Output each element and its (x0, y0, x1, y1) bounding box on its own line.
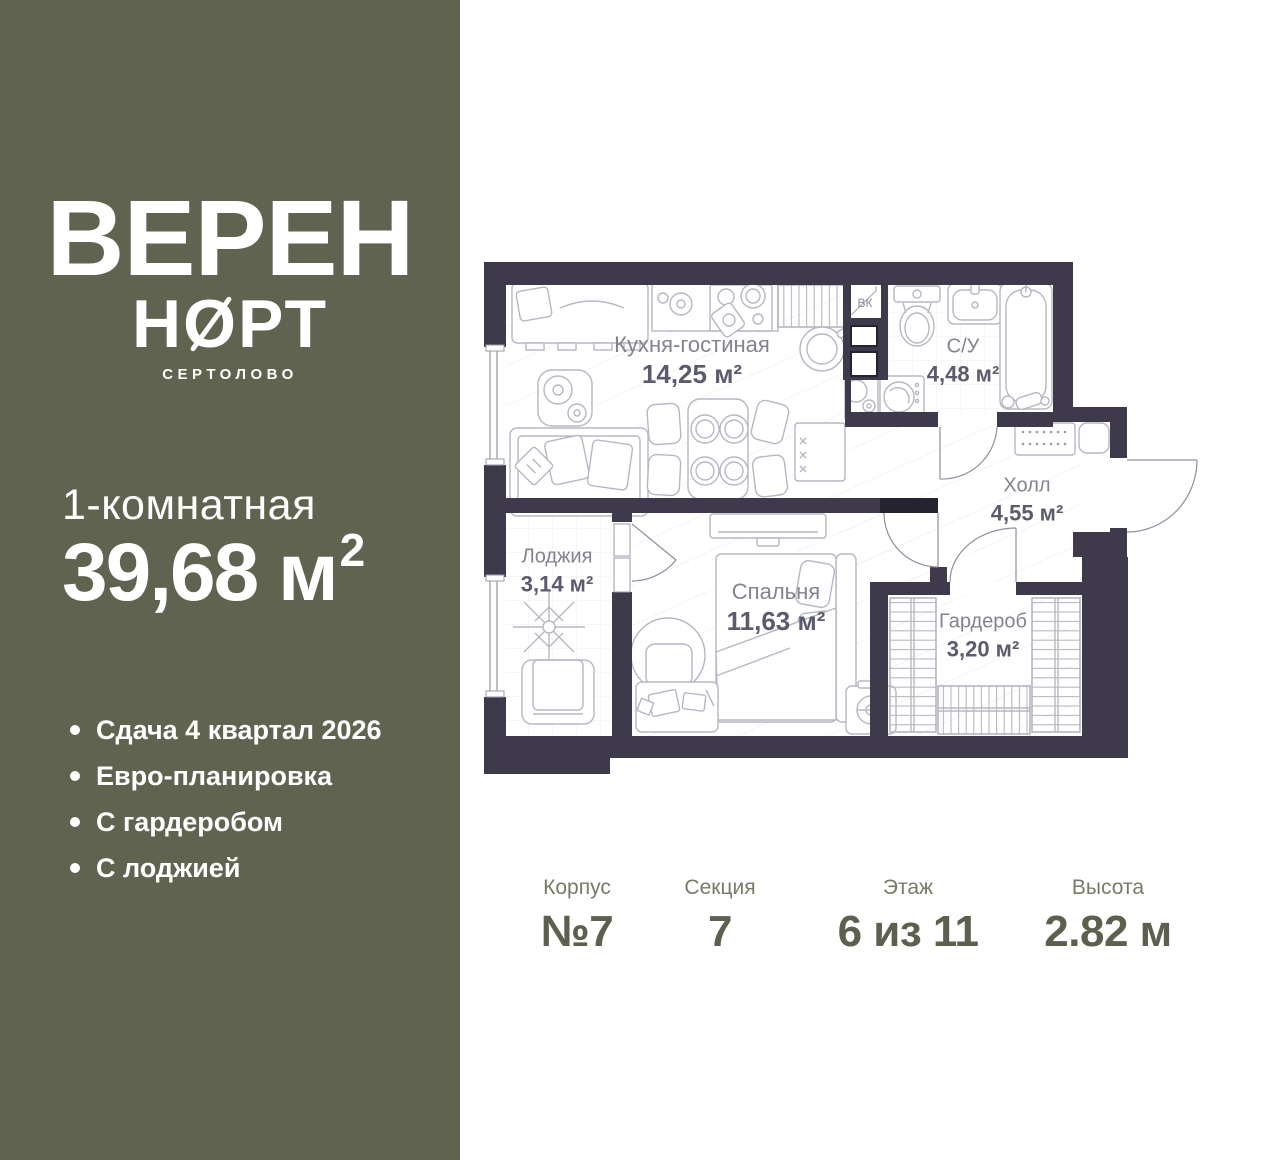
brand-line2-prefix: Н (132, 286, 183, 362)
room-area: 3,14 м² (521, 571, 594, 596)
room-label-bedroom: Спальня 11,63 м² (727, 579, 826, 637)
unit-area: 39,68 м2 (62, 532, 460, 614)
room-label-loggia: Лоджия 3,14 м² (521, 545, 594, 596)
room-label-wardrobe: Гардероб 3,20 м² (939, 610, 1027, 661)
hall-bench (1079, 423, 1109, 453)
room-area: 3,20 м² (939, 636, 1027, 661)
stat-value: 7 (684, 907, 755, 957)
loggia-armchair (522, 660, 594, 724)
stat-label: Этаж (838, 876, 979, 900)
stat-value: 2.82 м (1044, 907, 1171, 957)
bullet-dot (70, 817, 80, 827)
unit-area-superscript: 2 (340, 527, 366, 573)
room-area: 11,63 м² (727, 607, 826, 637)
sidebar: ВЕРЕН НОРТ СЕРТОЛОВО 1-комнатная 39,68 м… (0, 0, 460, 1160)
unit-area-unit: м (257, 527, 336, 618)
room-name: Кухня-гостиная (614, 332, 770, 357)
brand-city: СЕРТОЛОВО (0, 366, 460, 384)
feature-item: С лоджией (70, 845, 460, 891)
stat-label: Высота (1044, 876, 1171, 900)
bathtub (1000, 283, 1052, 409)
unit-area-value: 39,68 (62, 527, 257, 618)
vk-shaft-label: ВК (858, 296, 873, 310)
slashed-o-glyph: О (183, 290, 238, 358)
room-label-hall: Холл 4,55 м² (991, 474, 1064, 525)
bullet-dot (70, 771, 80, 781)
stat-value: №7 (541, 907, 614, 957)
unit-type: 1-комнатная (62, 480, 460, 532)
feature-item: Евро-планировка (70, 753, 460, 799)
unit-summary: 1-комнатная 39,68 м2 (0, 480, 460, 614)
shoe-cabinet (1015, 423, 1075, 455)
side-table (538, 370, 592, 426)
room-label-kitchen: Кухня-гостиная 14,25 м² (614, 332, 770, 390)
room-name: Холл (991, 474, 1064, 497)
brand-line2-suffix: РТ (238, 286, 328, 362)
stat-label: Корпус (541, 876, 614, 900)
feature-text: Сдача 4 квартал 2026 (96, 707, 382, 753)
room-area: 14,25 м² (614, 360, 770, 390)
listing-card: ВЕРЕН НОРТ СЕРТОЛОВО 1-комнатная 39,68 м… (0, 0, 1280, 1160)
washing-machine (880, 376, 924, 418)
feature-text: Евро-планировка (96, 753, 332, 799)
room-area: 4,48 м² (927, 361, 1000, 386)
fridge (795, 423, 845, 481)
room-name: Спальня (727, 579, 826, 604)
feature-item: Сдача 4 квартал 2026 (70, 707, 460, 753)
room-area: 4,55 м² (991, 500, 1064, 525)
feature-text: С гардеробом (96, 799, 283, 845)
stat-value: 6 из 11 (838, 907, 979, 957)
bullet-dot (70, 725, 80, 735)
stat-height: Высота 2.82 м (1044, 876, 1171, 957)
room-name: С/У (927, 335, 1000, 358)
room-name: Гардероб (939, 610, 1027, 633)
room-label-bathroom: С/У 4,48 м² (927, 335, 1000, 386)
feature-text: С лоджией (96, 845, 240, 891)
brand-logo: ВЕРЕН НОРТ СЕРТОЛОВО (0, 184, 460, 384)
brand-line1: ВЕРЕН (0, 184, 460, 292)
bullet-dot (70, 863, 80, 873)
bedroom-armchair (631, 618, 705, 692)
floor-plan (460, 240, 1280, 800)
feature-item: С гардеробом (70, 799, 460, 845)
stat-section: Секция 7 (684, 876, 755, 957)
stat-floor: Этаж 6 из 11 (838, 876, 979, 957)
stat-label: Секция (684, 876, 755, 900)
room-name: Лоджия (521, 545, 594, 568)
stat-building: Корпус №7 (541, 876, 614, 957)
bath-sink (948, 280, 1002, 324)
feature-list: Сдача 4 квартал 2026 Евро-планировка С г… (0, 707, 460, 891)
brand-line2: НОРТ (0, 290, 460, 358)
desk (636, 682, 718, 732)
